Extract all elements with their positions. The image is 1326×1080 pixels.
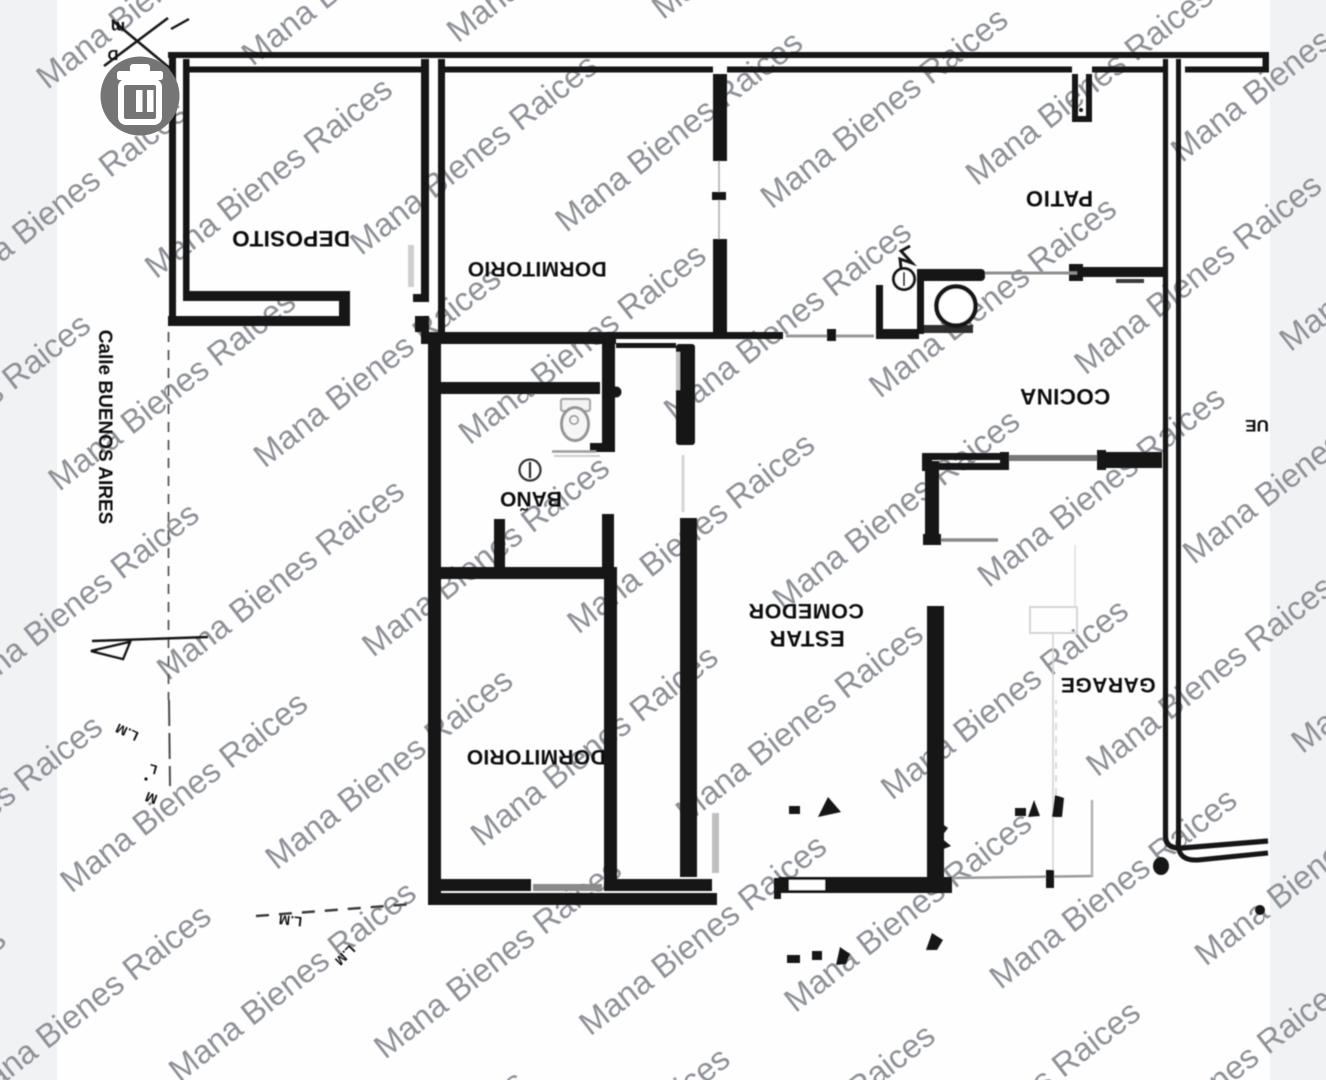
svg-text:D: D	[107, 46, 118, 63]
svg-text:Calle BUENOS AIRES: Calle BUENOS AIRES	[94, 330, 115, 525]
svg-text:GARAGE: GARAGE	[1060, 673, 1155, 696]
svg-text:PATIO: PATIO	[1025, 186, 1093, 211]
svg-text:m: m	[111, 18, 125, 35]
svg-text:DORMITORIO: DORMITORIO	[466, 745, 605, 768]
svg-text:BAÑO: BAÑO	[500, 487, 562, 510]
svg-text:COMEDOR: COMEDOR	[748, 599, 864, 623]
svg-text:DEPOSITO: DEPOSITO	[232, 226, 350, 251]
svg-text:DORMITORIO: DORMITORIO	[467, 257, 606, 280]
svg-text:ESTAR: ESTAR	[769, 626, 844, 651]
svg-text:UE: UE	[1245, 416, 1269, 435]
svg-text:COCINA: COCINA	[1020, 384, 1111, 409]
